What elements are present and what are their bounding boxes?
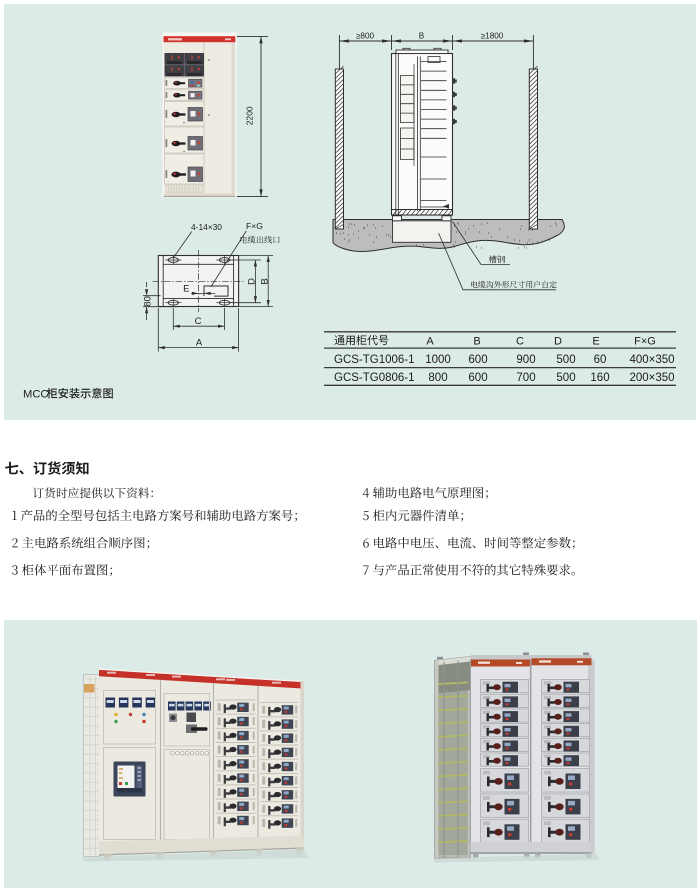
svg-text:60: 60 (594, 354, 607, 366)
svg-text:1000: 1000 (425, 354, 451, 366)
svg-text:600: 600 (468, 354, 487, 366)
svg-text:2200: 2200 (244, 106, 254, 125)
svg-text:D: D (247, 278, 258, 285)
svg-text:E: E (592, 335, 599, 347)
svg-text:700: 700 (516, 372, 535, 384)
svg-text:160: 160 (590, 372, 609, 384)
svg-text:B: B (473, 335, 480, 347)
svg-text:GCS-TG0806-1: GCS-TG0806-1 (334, 372, 415, 384)
svg-text:B: B (419, 32, 425, 41)
svg-text:GCS-TG1006-1: GCS-TG1006-1 (334, 354, 415, 366)
svg-text:≥800: ≥800 (356, 32, 375, 41)
svg-text:A: A (196, 337, 203, 348)
svg-text:800: 800 (428, 372, 447, 384)
svg-text:200×350: 200×350 (629, 372, 674, 384)
svg-text:C: C (195, 316, 202, 327)
svg-text:80: 80 (143, 296, 154, 307)
svg-text:MCC: MCC (23, 389, 48, 401)
svg-text:900: 900 (516, 354, 535, 366)
svg-text:E: E (183, 283, 189, 294)
svg-text:400×350: 400×350 (629, 354, 674, 366)
svg-text:500: 500 (556, 372, 575, 384)
svg-text:C: C (516, 335, 524, 347)
svg-text:600: 600 (468, 372, 487, 384)
svg-text:≥1800: ≥1800 (481, 32, 504, 41)
svg-text:4-14×30: 4-14×30 (191, 222, 222, 232)
svg-text:A: A (426, 335, 434, 347)
svg-text:D: D (554, 335, 562, 347)
svg-text:F×G: F×G (634, 335, 656, 347)
svg-text:B: B (260, 278, 271, 284)
svg-text:500: 500 (556, 354, 575, 366)
svg-text:F×G: F×G (246, 221, 263, 231)
